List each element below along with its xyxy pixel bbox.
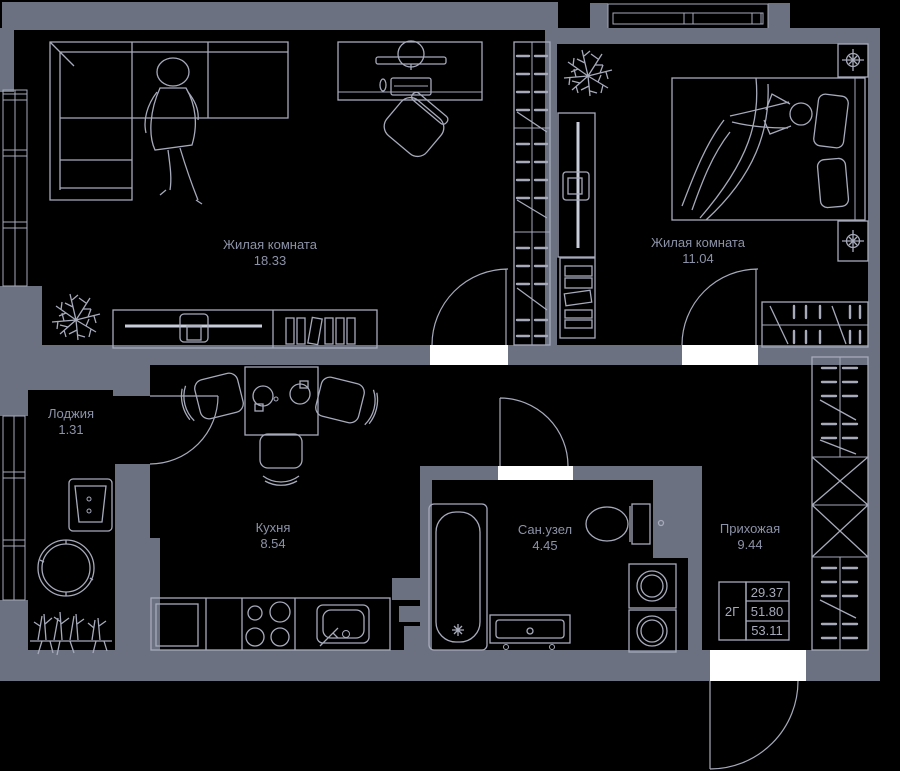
info-value: 29.37: [751, 585, 784, 600]
bedroom-tv-unit: [558, 113, 595, 338]
bathroom-sink: [490, 615, 570, 650]
hallway-furniture: 2Г 29.37 51.80 53.11: [719, 357, 868, 650]
svg-text:Жилая комната: Жилая комната: [223, 237, 318, 252]
info-value: 51.80: [751, 604, 784, 619]
fridge: [156, 604, 198, 646]
loggia-furniture: [30, 479, 112, 655]
loggia-window-icon: [3, 416, 25, 600]
person-standing: [145, 58, 202, 204]
info-box: 2Г 29.37 51.80 53.11: [719, 582, 789, 640]
svg-text:Прихожая: Прихожая: [720, 521, 780, 536]
toilet: [586, 504, 664, 544]
crosshair-icon: [842, 49, 864, 71]
room-label-bathroom: Сан.узел 4.45: [518, 522, 572, 553]
plant-icon: [52, 294, 100, 340]
sofa: [50, 42, 288, 200]
washer-dryer-stack: [629, 564, 676, 652]
desk-chair: [379, 88, 452, 161]
bathroom-door-arc: [500, 398, 568, 466]
dining-table: [245, 367, 318, 435]
floorplan-svg: 2Г 29.37 51.80 53.11 Жила: [0, 0, 900, 771]
bedroom-bay-window-icon: [608, 4, 768, 28]
living-window-icon: [3, 90, 27, 286]
bedroom-door-arc: [682, 269, 758, 345]
hall-wardrobe: [812, 357, 868, 650]
bedroom-door-opening: [682, 345, 758, 365]
room-label-loggia: Лоджия 1.31: [48, 406, 94, 437]
info-value: 53.11: [751, 623, 783, 638]
apartment-type-label: 2Г: [725, 604, 739, 619]
bedroom-wardrobe: [762, 302, 868, 347]
crosshair-icon: [842, 230, 864, 252]
svg-text:1.31: 1.31: [58, 422, 83, 437]
loggia-plant-icon: [30, 612, 112, 655]
svg-text:Лоджия: Лоджия: [48, 406, 94, 421]
bathroom-door-opening: [498, 466, 573, 480]
room-label-bedroom: Жилая комната 11.04: [651, 235, 746, 266]
room-label-living: Жилая комната 18.33: [223, 237, 318, 268]
svg-text:18.33: 18.33: [254, 253, 287, 268]
tv-cabinet: [113, 310, 377, 348]
svg-text:11.04: 11.04: [682, 251, 714, 266]
loggia-table: [38, 540, 94, 596]
room-label-kitchen: Кухня 8.54: [256, 520, 291, 551]
living-door-arc: [432, 269, 508, 345]
floor-plan: 2Г 29.37 51.80 53.11 Жила: [0, 0, 900, 771]
kitchen-counter: [151, 598, 390, 650]
svg-text:Жилая комната: Жилая комната: [651, 235, 746, 250]
entrance-door-arc: [710, 681, 798, 769]
person-lying: [682, 94, 812, 210]
living-room-furniture: [50, 41, 550, 348]
entrance-door-opening: [710, 650, 806, 681]
svg-text:Сан.узел: Сан.узел: [518, 522, 572, 537]
living-door-opening: [430, 345, 508, 365]
loggia-armchair: [69, 479, 112, 531]
dining-chair: [314, 375, 381, 428]
svg-text:9.44: 9.44: [737, 537, 762, 552]
living-wardrobe: [514, 42, 550, 345]
bedside-table: [838, 44, 868, 261]
loggia-door-arc: [150, 396, 218, 464]
dining-chair: [178, 371, 245, 424]
dining-chair: [260, 434, 302, 485]
bathtub: [429, 504, 487, 650]
plant-icon: [564, 50, 612, 96]
bedroom-furniture: [558, 44, 868, 347]
svg-text:8.54: 8.54: [260, 536, 285, 551]
svg-text:4.45: 4.45: [532, 538, 557, 553]
stove: [246, 602, 290, 646]
svg-text:Кухня: Кухня: [256, 520, 291, 535]
kitchen-sink: [317, 605, 369, 646]
desk: [338, 41, 482, 100]
bed: [672, 78, 865, 220]
kitchen-furniture: [151, 367, 390, 650]
room-label-hallway: Прихожая 9.44: [720, 521, 780, 552]
